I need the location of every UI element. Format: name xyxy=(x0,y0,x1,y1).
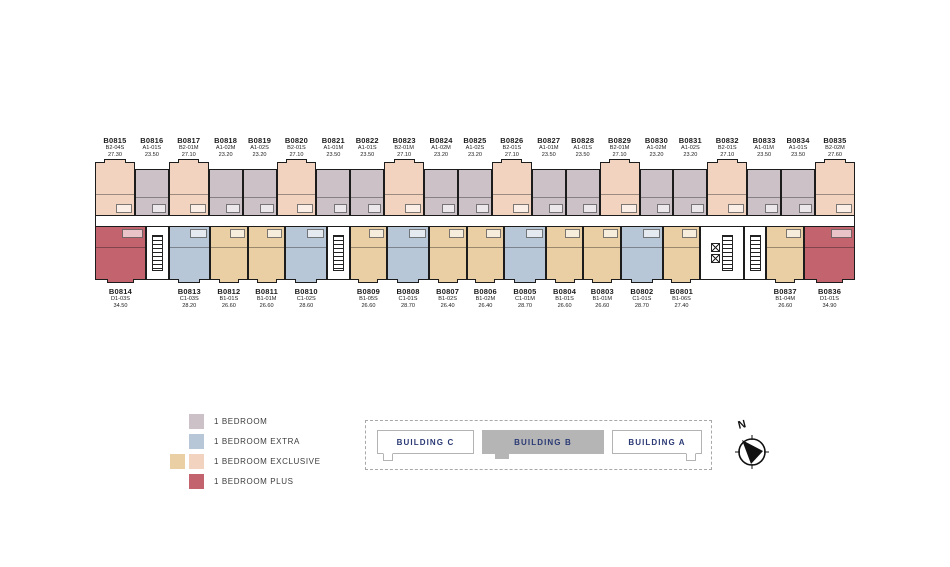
interior-wall xyxy=(708,194,746,195)
unit-label-B0813: B0813C1-03S28.20 xyxy=(169,287,210,310)
interior-wall xyxy=(136,197,168,198)
interior-wall xyxy=(674,197,706,198)
unit-unit-text: B0808 xyxy=(387,287,428,296)
unit-label-B0818: B0818A1-02M23.20 xyxy=(209,136,243,159)
legend-row-1-bedroom-plus: 1 BEDROOM PLUS xyxy=(170,474,321,489)
unit-type-text: A1-01S xyxy=(135,145,169,152)
unit-type-text: A1-01S xyxy=(350,145,384,152)
unit-area-text: 26.40 xyxy=(467,303,505,310)
unit-unit-text: B0804 xyxy=(546,287,584,296)
unit-unit-text: B0807 xyxy=(429,287,467,296)
bathroom-block xyxy=(230,229,245,238)
unit-B0804[interactable] xyxy=(546,226,584,280)
bedroom-exclusive-peach-swatch-icon xyxy=(189,454,204,469)
unit-label-B0837: B0837B1-04M26.60 xyxy=(766,287,804,310)
unit-B0809[interactable] xyxy=(350,226,388,280)
unit-type-text: D1-03S xyxy=(95,296,146,303)
bathroom-block xyxy=(728,204,744,213)
interior-wall xyxy=(767,247,803,248)
unit-label-B0823: B0823B2-01M27.10 xyxy=(384,136,424,159)
bathroom-block xyxy=(831,229,852,238)
building-b-button[interactable]: BUILDING B xyxy=(482,430,604,454)
balcony-tab xyxy=(501,159,522,163)
unit-type-text: B2-01M xyxy=(169,145,209,152)
unit-B0825[interactable] xyxy=(458,169,492,216)
bathroom-block xyxy=(307,229,324,238)
unit-label-B0815: B0815B2-04S27.30 xyxy=(95,136,135,159)
unit-unit-text: B0820 xyxy=(277,136,317,145)
bathroom-block xyxy=(657,204,670,213)
unit-area-text: 23.50 xyxy=(781,152,815,159)
unit-type-text: A1-02S xyxy=(673,145,707,152)
unit-area-text: 28.70 xyxy=(504,303,545,310)
bedroom-exclusive-tan-swatch-icon xyxy=(170,454,185,469)
balcony-tab xyxy=(295,279,317,283)
unit-label-B0807: B0807B1-02S26.40 xyxy=(429,287,467,310)
unit-type-text: A1-01M xyxy=(747,145,781,152)
balcony-tab xyxy=(257,279,277,283)
unit-label-B0817: B0817B2-01M27.10 xyxy=(169,136,209,159)
bathroom-block xyxy=(526,229,543,238)
corridor xyxy=(95,216,855,226)
unit-type-text: C1-03S xyxy=(169,296,210,303)
balcony-tab xyxy=(438,279,458,283)
unit-type-text: B2-02M xyxy=(815,145,855,152)
elevator-core xyxy=(700,226,743,280)
unit-B0808[interactable] xyxy=(387,226,428,280)
interior-wall xyxy=(567,197,599,198)
unit-type-text: A1-01S xyxy=(781,145,815,152)
stairs-icon xyxy=(722,235,733,271)
unit-unit-text: B0835 xyxy=(815,136,855,145)
unit-area-text: 23.50 xyxy=(350,152,384,159)
bottom-unit-labels: B0814D1-03S34.50B0813C1-03S28.20B0812B1-… xyxy=(95,287,855,319)
legend-row-1-bedroom-exclusive: 1 BEDROOM EXCLUSIVE xyxy=(170,454,321,469)
unit-area-text: 27.10 xyxy=(600,152,640,159)
unit-type-text: B1-06S xyxy=(663,296,701,303)
bathroom-block xyxy=(682,229,697,238)
unit-area-text: 27.60 xyxy=(815,152,855,159)
unit-unit-text: B0837 xyxy=(766,287,804,296)
unit-label-B0803: B0803B1-01M26.60 xyxy=(583,287,621,310)
unit-label-B0812: B0812B1-01S26.60 xyxy=(210,287,248,310)
top-units-row xyxy=(95,162,855,216)
unit-B0834[interactable] xyxy=(781,169,815,216)
balcony-tab xyxy=(775,279,795,283)
unit-type-text: D1-01S xyxy=(804,296,855,303)
interior-wall xyxy=(748,197,780,198)
unit-area-text: 26.60 xyxy=(546,303,584,310)
interior-wall xyxy=(388,247,427,248)
unit-type-text: C1-01S xyxy=(621,296,662,303)
unit-area-text: 23.20 xyxy=(640,152,674,159)
unit-unit-text: B0833 xyxy=(747,136,781,145)
unit-B0816[interactable] xyxy=(135,169,169,216)
unit-area-text: 27.10 xyxy=(169,152,209,159)
bedroom-extra-swatch-icon xyxy=(189,434,204,449)
unit-unit-text: B0828 xyxy=(566,136,600,145)
unit-B0807[interactable] xyxy=(429,226,467,280)
unit-B0814[interactable] xyxy=(95,226,146,280)
unit-area-text: 23.50 xyxy=(316,152,350,159)
unit-type-text: A1-01S xyxy=(566,145,600,152)
bathroom-block xyxy=(476,204,489,213)
balcony-tab xyxy=(609,159,630,163)
unit-B0815[interactable] xyxy=(95,162,135,216)
unit-label-B0829: B0829B2-01M27.10 xyxy=(600,136,640,159)
balcony-tab xyxy=(592,279,612,283)
interior-wall xyxy=(244,197,276,198)
bathroom-block xyxy=(116,204,132,213)
building-c-button[interactable]: BUILDING C xyxy=(377,430,474,454)
unit-unit-text: B0819 xyxy=(243,136,277,145)
unit-area-text: 34.90 xyxy=(804,303,855,310)
compass-rose-icon xyxy=(729,420,775,474)
unit-unit-text: B0816 xyxy=(135,136,169,145)
interior-wall xyxy=(170,247,209,248)
interior-wall xyxy=(584,247,620,248)
unit-type-text: A1-02M xyxy=(209,145,243,152)
unit-label-B0825: B0825A1-02S23.20 xyxy=(458,136,492,159)
unit-B0823[interactable] xyxy=(384,162,424,216)
bathroom-block xyxy=(190,229,207,238)
unit-unit-text: B0815 xyxy=(95,136,135,145)
interior-wall xyxy=(96,194,134,195)
unit-type-text: B2-01S xyxy=(492,145,532,152)
unit-type-text: B1-04M xyxy=(766,296,804,303)
building-a-button[interactable]: BUILDING A xyxy=(612,430,702,454)
unit-area-text: 23.50 xyxy=(532,152,566,159)
bathroom-block xyxy=(643,229,660,238)
balcony-tab xyxy=(178,159,199,163)
balcony-tab xyxy=(107,279,134,283)
unit-B0833[interactable] xyxy=(747,169,781,216)
unit-area-text: 23.20 xyxy=(458,152,492,159)
unit-label-B0820: B0820B2-01S27.10 xyxy=(277,136,317,159)
unit-label-B0802: B0802C1-01S28.70 xyxy=(621,287,662,310)
unit-B0818[interactable] xyxy=(209,169,243,216)
interior-wall xyxy=(533,197,565,198)
unit-B0828[interactable] xyxy=(566,169,600,216)
stairs-icon xyxy=(750,235,761,271)
unit-unit-text: B0821 xyxy=(316,136,350,145)
bathroom-block xyxy=(334,204,347,213)
legend-label: 1 BEDROOM EXCLUSIVE xyxy=(214,457,321,466)
unit-label-B0824: B0824A1-02M23.20 xyxy=(424,136,458,159)
legend: 1 BEDROOM 1 BEDROOM EXTRA 1 BEDROOM EXCL… xyxy=(170,414,321,494)
unit-B0836[interactable] xyxy=(804,226,855,280)
bathroom-block xyxy=(513,204,529,213)
unit-unit-text: B0803 xyxy=(583,287,621,296)
unit-B0810[interactable] xyxy=(285,226,326,280)
unit-B0811[interactable] xyxy=(248,226,286,280)
legend-label: 1 BEDROOM xyxy=(214,417,267,426)
unit-B0806[interactable] xyxy=(467,226,505,280)
unit-unit-text: B0810 xyxy=(285,287,326,296)
bathroom-block xyxy=(267,229,282,238)
balcony-tab xyxy=(286,159,307,163)
building-c-label: BUILDING C xyxy=(397,438,455,447)
unit-B0831[interactable] xyxy=(673,169,707,216)
balcony-tab xyxy=(671,279,691,283)
unit-B0835[interactable] xyxy=(815,162,855,216)
unit-type-text: B2-01S xyxy=(707,145,747,152)
bathroom-block xyxy=(369,229,384,238)
unit-unit-text: B0809 xyxy=(350,287,388,296)
unit-area-text: 26.60 xyxy=(210,303,248,310)
bathroom-block xyxy=(549,204,562,213)
unit-unit-text: B0822 xyxy=(350,136,384,145)
unit-unit-text: B0823 xyxy=(384,136,424,145)
unit-type-text: A1-02M xyxy=(424,145,458,152)
unit-type-text: B2-01M xyxy=(600,145,640,152)
unit-area-text: 27.30 xyxy=(95,152,135,159)
interior-wall xyxy=(547,247,583,248)
unit-B0822[interactable] xyxy=(350,169,384,216)
unit-label-B0834: B0834A1-01S23.50 xyxy=(781,136,815,159)
unit-area-text: 23.50 xyxy=(135,152,169,159)
unit-area-text: 34.50 xyxy=(95,303,146,310)
unit-B0813[interactable] xyxy=(169,226,210,280)
unit-unit-text: B0814 xyxy=(95,287,146,296)
interior-wall xyxy=(317,197,349,198)
interior-wall xyxy=(816,194,854,195)
unit-B0812[interactable] xyxy=(210,226,248,280)
unit-unit-text: B0801 xyxy=(663,287,701,296)
unit-unit-text: B0805 xyxy=(504,287,545,296)
balcony-tab xyxy=(816,279,843,283)
unit-area-text: 26.60 xyxy=(583,303,621,310)
bathroom-block xyxy=(449,229,464,238)
unit-B0805[interactable] xyxy=(504,226,545,280)
unit-type-text: C1-02S xyxy=(285,296,326,303)
unit-unit-text: B0827 xyxy=(532,136,566,145)
interior-wall xyxy=(505,247,544,248)
unit-unit-text: B0802 xyxy=(621,287,662,296)
bathroom-block xyxy=(152,204,165,213)
building-selector: BUILDING C BUILDING B BUILDING A xyxy=(365,420,712,470)
interior-wall xyxy=(249,247,285,248)
interior-wall xyxy=(286,247,325,248)
interior-wall xyxy=(493,194,531,195)
unit-unit-text: B0813 xyxy=(169,287,210,296)
unit-area-text: 26.40 xyxy=(429,303,467,310)
legend-label: 1 BEDROOM EXTRA xyxy=(214,437,300,446)
unit-type-text: B2-01M xyxy=(384,145,424,152)
unit-type-text: B1-05S xyxy=(350,296,388,303)
unit-area-text: 28.60 xyxy=(285,303,326,310)
unit-unit-text: B0818 xyxy=(209,136,243,145)
building-a-wing xyxy=(686,453,696,461)
unit-B0801[interactable] xyxy=(663,226,701,280)
unit-area-text: 28.20 xyxy=(169,303,210,310)
bathroom-block xyxy=(603,229,618,238)
bathroom-block xyxy=(765,204,778,213)
unit-label-B0836: B0836D1-01S34.90 xyxy=(804,287,855,310)
interior-wall xyxy=(385,194,423,195)
unit-type-text: B2-01S xyxy=(277,145,317,152)
unit-B0821[interactable] xyxy=(316,169,350,216)
bathroom-block xyxy=(621,204,637,213)
unit-label-B0822: B0822A1-01S23.50 xyxy=(350,136,384,159)
interior-wall xyxy=(622,247,661,248)
interior-wall xyxy=(468,247,504,248)
building-b-wing xyxy=(495,453,509,459)
bathroom-block xyxy=(486,229,501,238)
unit-area-text: 28.70 xyxy=(387,303,428,310)
unit-area-text: 23.20 xyxy=(209,152,243,159)
interior-wall xyxy=(170,194,208,195)
unit-label-B0806: B0806B1-02M26.40 xyxy=(467,287,505,310)
unit-label-B0804: B0804B1-01S26.60 xyxy=(546,287,584,310)
bathroom-block xyxy=(122,229,143,238)
interior-wall xyxy=(351,197,383,198)
bedroom-swatch-icon xyxy=(189,414,204,429)
stairs-icon xyxy=(333,235,344,271)
interior-wall xyxy=(601,194,639,195)
balcony-tab xyxy=(824,159,845,163)
interior-wall xyxy=(96,247,145,248)
balcony-tab xyxy=(394,159,415,163)
unit-label-B0830: B0830A1-02M23.20 xyxy=(640,136,674,159)
bathroom-block xyxy=(836,204,852,213)
unit-type-text: C1-01S xyxy=(387,296,428,303)
interior-wall xyxy=(351,247,387,248)
balcony-tab xyxy=(631,279,653,283)
bathroom-block xyxy=(190,204,206,213)
unit-unit-text: B0825 xyxy=(458,136,492,145)
balcony-tab xyxy=(475,279,495,283)
unit-type-text: A1-01M xyxy=(316,145,350,152)
bathroom-block xyxy=(799,204,812,213)
balcony-tab xyxy=(358,279,378,283)
stairs-icon xyxy=(152,235,163,271)
balcony-tab xyxy=(397,279,419,283)
unit-label-B0814: B0814D1-03S34.50 xyxy=(95,287,146,310)
unit-label-B0808: B0808C1-01S28.70 xyxy=(387,287,428,310)
unit-label-B0809: B0809B1-05S26.60 xyxy=(350,287,388,310)
unit-area-text: 26.60 xyxy=(350,303,388,310)
unit-unit-text: B0832 xyxy=(707,136,747,145)
unit-type-text: B1-02M xyxy=(467,296,505,303)
unit-B0817[interactable] xyxy=(169,162,209,216)
unit-unit-text: B0826 xyxy=(492,136,532,145)
unit-area-text: 27.10 xyxy=(384,152,424,159)
interior-wall xyxy=(210,197,242,198)
unit-unit-text: B0830 xyxy=(640,136,674,145)
unit-label-B0810: B0810C1-02S28.60 xyxy=(285,287,326,310)
unit-area-text: 26.60 xyxy=(766,303,804,310)
bathroom-block xyxy=(405,204,421,213)
stair-core xyxy=(146,226,169,280)
interior-wall xyxy=(211,247,247,248)
unit-label-B0833: B0833A1-01M23.50 xyxy=(747,136,781,159)
interior-wall xyxy=(782,197,814,198)
stair-core xyxy=(327,226,350,280)
unit-B0837[interactable] xyxy=(766,226,804,280)
unit-area-text: 27.10 xyxy=(707,152,747,159)
building-b-label: BUILDING B xyxy=(514,438,572,447)
bathroom-block xyxy=(226,204,239,213)
bathroom-block xyxy=(442,204,455,213)
bathroom-block xyxy=(409,229,426,238)
bathroom-block xyxy=(583,204,596,213)
unit-unit-text: B0829 xyxy=(600,136,640,145)
unit-type-text: B1-01S xyxy=(546,296,584,303)
unit-label-B0821: B0821A1-01M23.50 xyxy=(316,136,350,159)
unit-type-text: A1-02S xyxy=(458,145,492,152)
balcony-tab xyxy=(514,279,536,283)
bottom-units-row xyxy=(95,226,855,280)
balcony-tab xyxy=(555,279,575,283)
balcony-tab xyxy=(178,279,200,283)
interior-wall xyxy=(430,247,466,248)
unit-type-text: C1-01M xyxy=(504,296,545,303)
unit-type-text: B1-02S xyxy=(429,296,467,303)
legend-row-1-bedroom-extra: 1 BEDROOM EXTRA xyxy=(170,434,321,449)
elevator-icon xyxy=(711,243,720,263)
interior-wall xyxy=(641,197,673,198)
unit-area-text: 23.20 xyxy=(424,152,458,159)
unit-type-text: A1-02S xyxy=(243,145,277,152)
bathroom-block xyxy=(260,204,273,213)
unit-area-text: 27.40 xyxy=(663,303,701,310)
unit-B0803[interactable] xyxy=(583,226,621,280)
bathroom-block xyxy=(368,204,381,213)
unit-B0802[interactable] xyxy=(621,226,662,280)
unit-label-B0805: B0805C1-01M28.70 xyxy=(504,287,545,310)
unit-unit-text: B0834 xyxy=(781,136,815,145)
unit-B0829[interactable] xyxy=(600,162,640,216)
unit-label-B0831: B0831A1-02S23.20 xyxy=(673,136,707,159)
unit-type-text: A1-01M xyxy=(532,145,566,152)
unit-label-B0811: B0811B1-01M26.60 xyxy=(248,287,286,310)
unit-unit-text: B0812 xyxy=(210,287,248,296)
unit-B0824[interactable] xyxy=(424,169,458,216)
unit-area-text: 23.20 xyxy=(243,152,277,159)
unit-type-text: B1-01M xyxy=(583,296,621,303)
unit-B0826[interactable] xyxy=(492,162,532,216)
unit-unit-text: B0806 xyxy=(467,287,505,296)
floor-plan: B0815B2-04S27.30B0816A1-01S23.50B0817B2-… xyxy=(95,125,855,319)
unit-area-text: 23.20 xyxy=(673,152,707,159)
unit-B0820[interactable] xyxy=(277,162,317,216)
unit-label-B0816: B0816A1-01S23.50 xyxy=(135,136,169,159)
floor-plan-page: B0815B2-04S27.30B0816A1-01S23.50B0817B2-… xyxy=(0,0,950,567)
unit-label-B0819: B0819A1-02S23.20 xyxy=(243,136,277,159)
unit-area-text: 26.60 xyxy=(248,303,286,310)
unit-unit-text: B0817 xyxy=(169,136,209,145)
building-a-label: BUILDING A xyxy=(628,438,685,447)
unit-B0827[interactable] xyxy=(532,169,566,216)
legend-label: 1 BEDROOM PLUS xyxy=(214,477,294,486)
unit-type-text: A1-02M xyxy=(640,145,674,152)
unit-area-text: 27.10 xyxy=(277,152,317,159)
unit-unit-text: B0836 xyxy=(804,287,855,296)
unit-B0832[interactable] xyxy=(707,162,747,216)
unit-label-B0832: B0832B2-01S27.10 xyxy=(707,136,747,159)
unit-B0819[interactable] xyxy=(243,169,277,216)
unit-label-B0827: B0827A1-01M23.50 xyxy=(532,136,566,159)
unit-label-B0828: B0828A1-01S23.50 xyxy=(566,136,600,159)
unit-B0830[interactable] xyxy=(640,169,674,216)
unit-area-text: 28.70 xyxy=(621,303,662,310)
unit-label-B0826: B0826B2-01S27.10 xyxy=(492,136,532,159)
bathroom-block xyxy=(297,204,313,213)
unit-area-text: 23.50 xyxy=(747,152,781,159)
compass: N xyxy=(729,420,775,474)
unit-unit-text: B0824 xyxy=(424,136,458,145)
